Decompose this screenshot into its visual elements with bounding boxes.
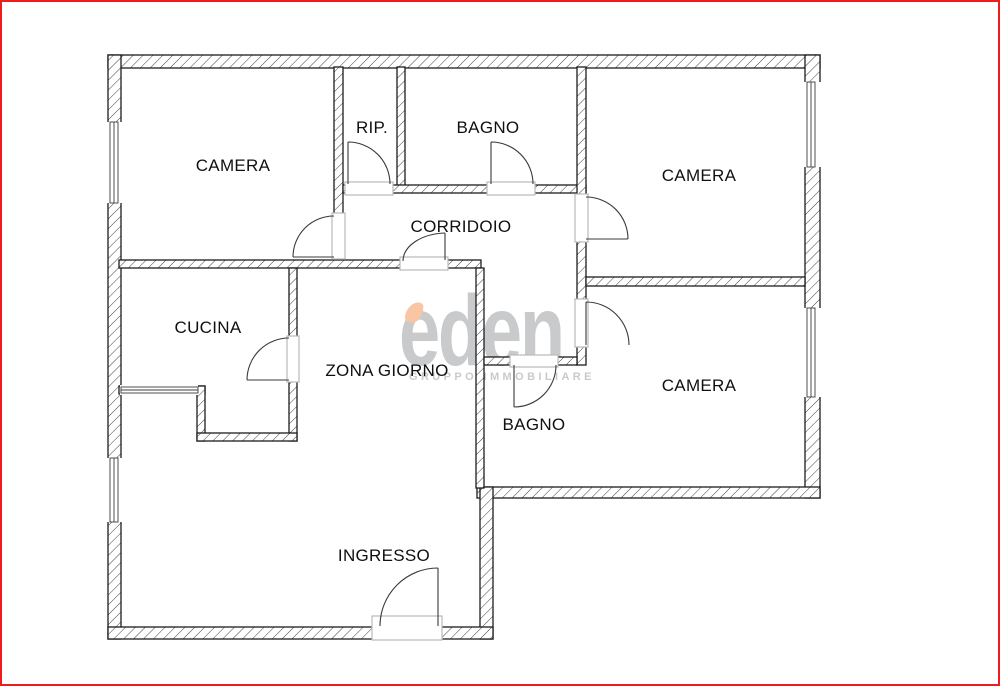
- room-label-camera-bottom-right: CAMERA: [662, 376, 737, 396]
- floor-plan-drawing: [0, 0, 1000, 686]
- room-label-cucina: CUCINA: [175, 318, 242, 338]
- room-label-camera-top-left: CAMERA: [196, 156, 271, 176]
- room-label-ripostiglio: RIP.: [356, 118, 388, 138]
- walls: [108, 55, 820, 639]
- room-label-ingresso: INGRESSO: [338, 546, 430, 566]
- door-swings: [247, 142, 629, 626]
- room-label-bagno-bottom: BAGNO: [503, 415, 566, 435]
- room-label-zona-giorno: ZONA GIORNO: [325, 361, 448, 381]
- room-label-corridoio: CORRIDOIO: [411, 217, 512, 237]
- room-label-bagno-top: BAGNO: [457, 118, 520, 138]
- room-label-camera-top-right: CAMERA: [662, 166, 737, 186]
- windows: [106, 82, 822, 522]
- floor-plan-page: eden GRUPPO IMMOBILIARE: [0, 0, 1000, 686]
